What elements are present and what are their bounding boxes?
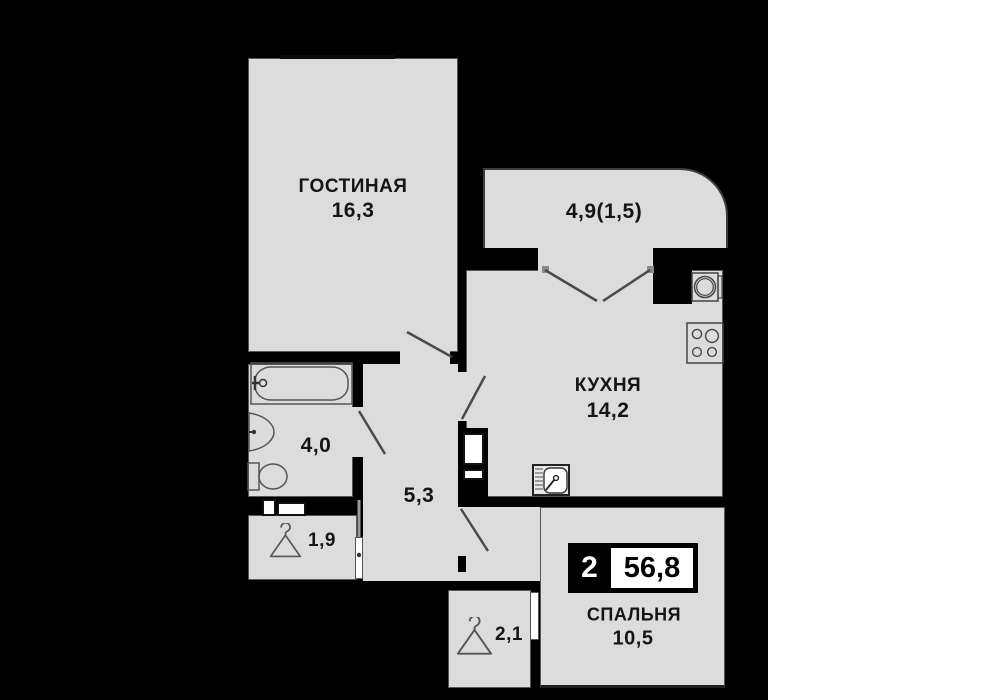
- plan-background: ГОСТИНАЯ 16,3 4,9(1,5) КУХНЯ 14,2 4,0 5,…: [0, 0, 768, 700]
- washing-machine-icon: [691, 272, 723, 302]
- bathroom-area: 4,0: [301, 434, 332, 458]
- bedroom-label: СПАЛЬНЯ: [587, 605, 681, 626]
- badge-total-area: 56,8: [611, 548, 693, 588]
- washbasin-icon: [248, 412, 275, 452]
- toilet-icon: [247, 461, 289, 492]
- apartment-badge: 2 56,8: [568, 543, 698, 593]
- hanger-icon: [268, 523, 302, 561]
- kitchen-label: КУХНЯ: [575, 375, 641, 397]
- badge-rooms-count: 2: [568, 551, 611, 585]
- hallway-area: 5,3: [404, 484, 435, 508]
- kitchen-sink-icon: [532, 464, 570, 496]
- closet-entry-area: 2,1: [495, 624, 523, 646]
- bathtub-icon: [250, 362, 353, 405]
- floorplan-stage: ГОСТИНАЯ 16,3 4,9(1,5) КУХНЯ 14,2 4,0 5,…: [0, 0, 1006, 700]
- bedroom-area: 10,5: [613, 628, 654, 651]
- hanger-icon: [455, 617, 493, 658]
- balcony-area: 4,9(1,5): [566, 200, 642, 224]
- living-room-area: 16,3: [332, 199, 375, 223]
- closet-small-area: 1,9: [308, 530, 336, 552]
- kitchen-area: 14,2: [587, 399, 630, 423]
- stove-icon: [686, 322, 724, 364]
- living-room-label: ГОСТИНАЯ: [299, 176, 408, 198]
- door-swing-lines: [0, 0, 768, 700]
